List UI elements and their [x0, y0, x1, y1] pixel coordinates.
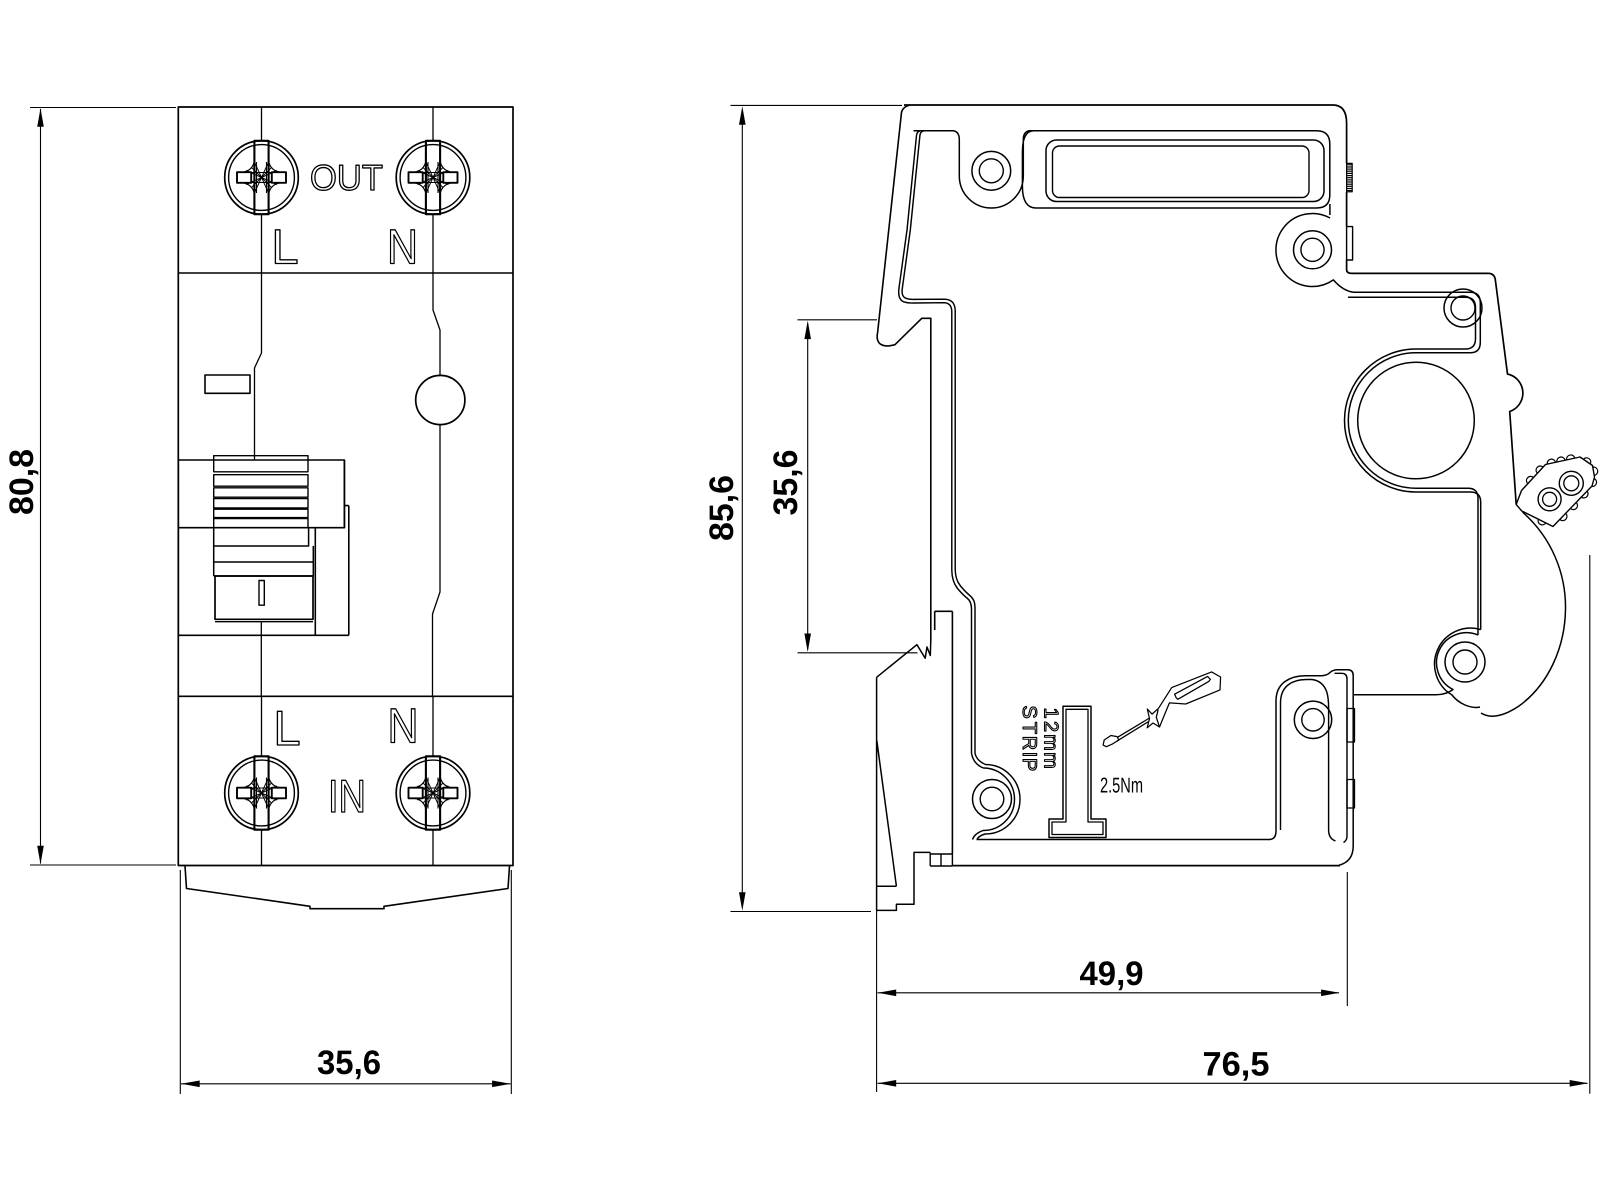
svg-text:85,6: 85,6	[703, 475, 741, 541]
svg-text:L: L	[273, 702, 300, 756]
svg-text:35,6: 35,6	[767, 450, 805, 516]
svg-text:I: I	[1018, 752, 1040, 758]
svg-text:N: N	[387, 220, 418, 274]
svg-text:P: P	[1018, 758, 1040, 771]
svg-text:m: m	[1040, 752, 1062, 769]
svg-text:2: 2	[1040, 721, 1062, 732]
svg-text:80,8: 80,8	[3, 449, 41, 515]
svg-text:T: T	[1018, 722, 1040, 734]
svg-text:R: R	[1018, 736, 1040, 750]
svg-text:S: S	[1018, 705, 1040, 718]
svg-text:m: m	[1040, 734, 1062, 751]
svg-text:L: L	[271, 220, 298, 274]
svg-text:49,9: 49,9	[1080, 955, 1144, 993]
svg-text:1: 1	[1040, 707, 1062, 718]
svg-text:OUT: OUT	[310, 157, 383, 198]
svg-text:35,6: 35,6	[317, 1044, 381, 1082]
svg-text:N: N	[388, 700, 419, 754]
svg-text:76,5: 76,5	[1203, 1046, 1270, 1084]
svg-text:2.5Nm: 2.5Nm	[1100, 774, 1143, 798]
svg-text:IN: IN	[328, 770, 366, 822]
